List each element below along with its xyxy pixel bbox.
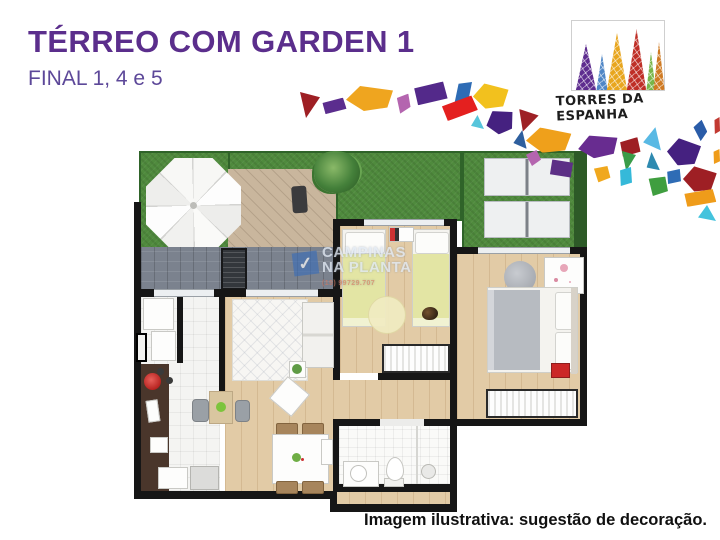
tower-icon (626, 29, 647, 90)
master-garden-door (478, 247, 570, 254)
patio-umbrella (146, 158, 241, 253)
kitchen-sink (151, 331, 176, 361)
wall (450, 420, 457, 512)
brand-name: TORRES DA ESPANHA (556, 90, 699, 125)
round-rug (368, 296, 406, 334)
dining-chair (276, 481, 298, 494)
kitchen-side-door (136, 333, 147, 362)
mosaic-piece (698, 205, 716, 221)
mosaic-piece (681, 189, 716, 207)
watermark-phone: (19) 99729.707 (322, 280, 375, 287)
wall (450, 219, 457, 380)
mosaic-piece (693, 119, 709, 142)
mosaic-piece (513, 129, 529, 149)
kitchen-appliance (158, 467, 188, 489)
chair (192, 399, 209, 422)
tower-icon (606, 33, 628, 90)
watermark-line2: NA PLANTA (322, 260, 412, 275)
wardrobe (486, 389, 578, 418)
mosaic-piece (394, 92, 412, 115)
mosaic-piece (645, 151, 660, 171)
mosaic-piece (472, 83, 509, 110)
mosaic-piece (411, 81, 448, 106)
chair (235, 400, 250, 422)
deck-chair (291, 186, 308, 214)
mosaic-piece (591, 163, 612, 184)
stove-burner (166, 377, 173, 384)
shelf (389, 227, 414, 242)
sofa (302, 302, 334, 368)
patio-living-sliding-door (246, 289, 318, 297)
fridge (143, 298, 174, 330)
page-subtitle: FINAL 1, 4 e 5 (28, 67, 163, 91)
mosaic-piece (346, 86, 393, 111)
counter-item (150, 437, 168, 453)
kitchen-appliance (190, 466, 219, 490)
mosaic-piece (713, 149, 720, 164)
dining-chair (302, 481, 324, 494)
dog (422, 307, 438, 320)
brand-logo-towers (571, 20, 665, 91)
mosaic-piece (644, 172, 671, 199)
bathroom-sink (350, 465, 367, 482)
wall (219, 293, 225, 391)
mosaic-piece (471, 115, 484, 129)
mosaic-piece (714, 117, 720, 134)
sun-lounger (484, 201, 570, 238)
table-decor (292, 453, 301, 462)
double-bed (487, 287, 578, 373)
garden-plant (314, 151, 360, 193)
bbq-grill (221, 248, 247, 290)
watermark-line1: CAMPINAS (322, 245, 412, 260)
wall (177, 293, 183, 363)
mosaic-piece (665, 137, 701, 168)
wall (333, 419, 339, 492)
tower-icon (575, 44, 597, 90)
vanity-decor (560, 264, 568, 272)
wall (450, 373, 457, 426)
toilet (386, 457, 404, 481)
tower-icon (653, 42, 665, 90)
wardrobe (382, 344, 450, 373)
mosaic-piece (300, 92, 320, 118)
page-title: TÉRREO COM GARDEN 1 (28, 24, 415, 60)
patio-kitchen-sliding-door (154, 289, 214, 297)
plant (292, 364, 302, 374)
hall-console (321, 439, 333, 465)
slide: TÉRREO COM GARDEN 1 FINAL 1, 4 e 5 TORRE… (0, 0, 720, 540)
mosaic-piece (666, 169, 681, 184)
shower-divider (416, 426, 418, 484)
bedroom2-garden-door (364, 219, 444, 226)
mosaic-piece (320, 97, 347, 114)
mosaic-piece (619, 167, 632, 186)
check-icon: ✓ (292, 251, 320, 277)
red-pot (144, 373, 161, 390)
mosaic-piece (642, 126, 665, 151)
mosaic-piece (484, 108, 516, 136)
wall (450, 419, 587, 426)
caption: Imagem ilustrativa: sugestão de decoraçã… (364, 511, 707, 530)
mosaic-piece (517, 109, 539, 133)
shower-head (421, 464, 436, 479)
wall (378, 373, 457, 380)
tower-icon (596, 54, 608, 90)
bathroom-door (380, 419, 424, 426)
stove-burner (157, 368, 164, 375)
garden-hedge (574, 151, 587, 247)
towel (550, 159, 573, 177)
fruit-bowl (216, 402, 226, 412)
red-stool (551, 363, 570, 378)
